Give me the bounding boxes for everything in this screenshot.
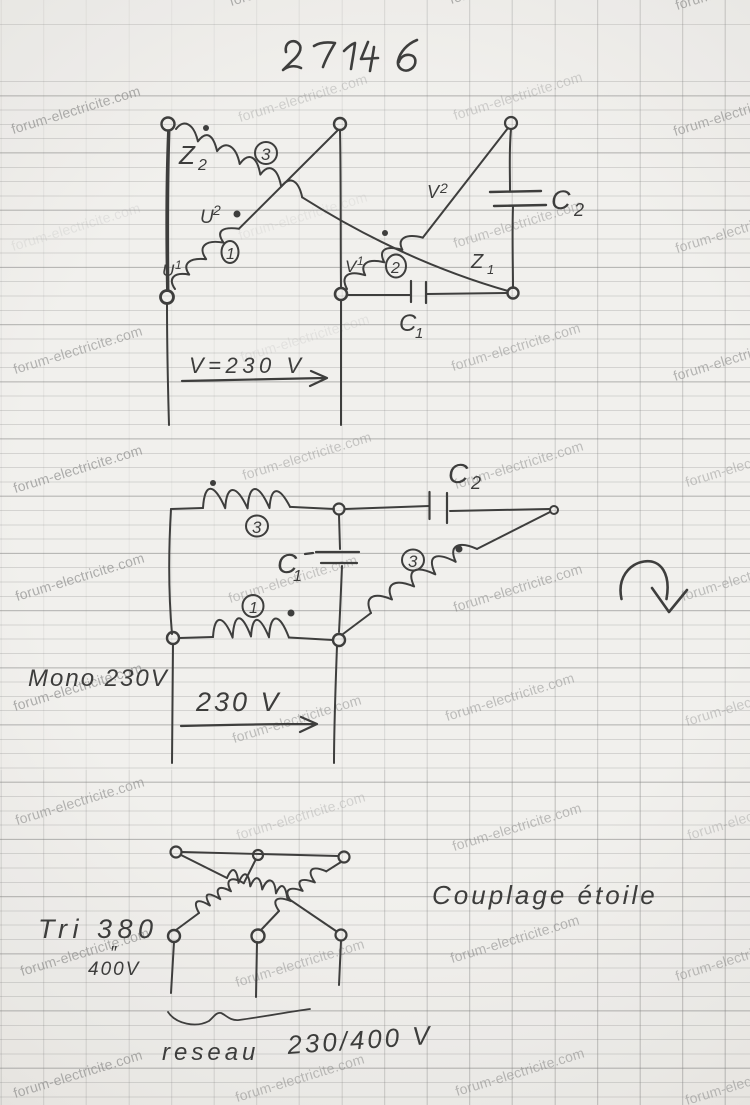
svg-text:1: 1 [293,568,302,585]
svg-text:C: C [448,458,469,489]
svg-text:2: 2 [197,157,207,174]
svg-text:V: V [427,182,441,202]
svg-text:1: 1 [415,325,423,342]
svg-text:230/400 V: 230/400 V [285,1020,433,1060]
svg-text:230 V: 230 V [195,687,282,717]
svg-text:V=230 V: V=230 V [189,353,306,378]
svg-text:3: 3 [408,552,418,571]
svg-text:reseau: reseau [162,1039,259,1066]
svg-text:Z: Z [470,251,484,273]
svg-text:2: 2 [212,202,221,218]
svg-text:3: 3 [261,145,271,164]
svg-text:1: 1 [175,258,182,272]
svg-text:U: U [200,207,214,228]
svg-text:2: 2 [390,260,400,277]
svg-text:Couplage étoile: Couplage étoile [432,880,658,910]
svg-text:2: 2 [439,180,448,196]
svg-text:2: 2 [573,200,584,220]
svg-text:1: 1 [226,246,235,263]
svg-text:1: 1 [487,262,494,277]
svg-text:3: 3 [252,518,262,537]
svg-text:C: C [551,185,571,215]
svg-text:1: 1 [357,254,364,268]
svg-text:Z: Z [178,140,196,170]
svg-text:2: 2 [470,473,481,493]
svg-text:Tri 380: Tri 380 [38,914,159,944]
svg-text:Mono 230V: Mono 230V [28,665,169,692]
svg-text:1: 1 [249,600,258,617]
svg-text:400V: 400V [88,959,141,980]
svg-text:U: U [162,261,175,280]
